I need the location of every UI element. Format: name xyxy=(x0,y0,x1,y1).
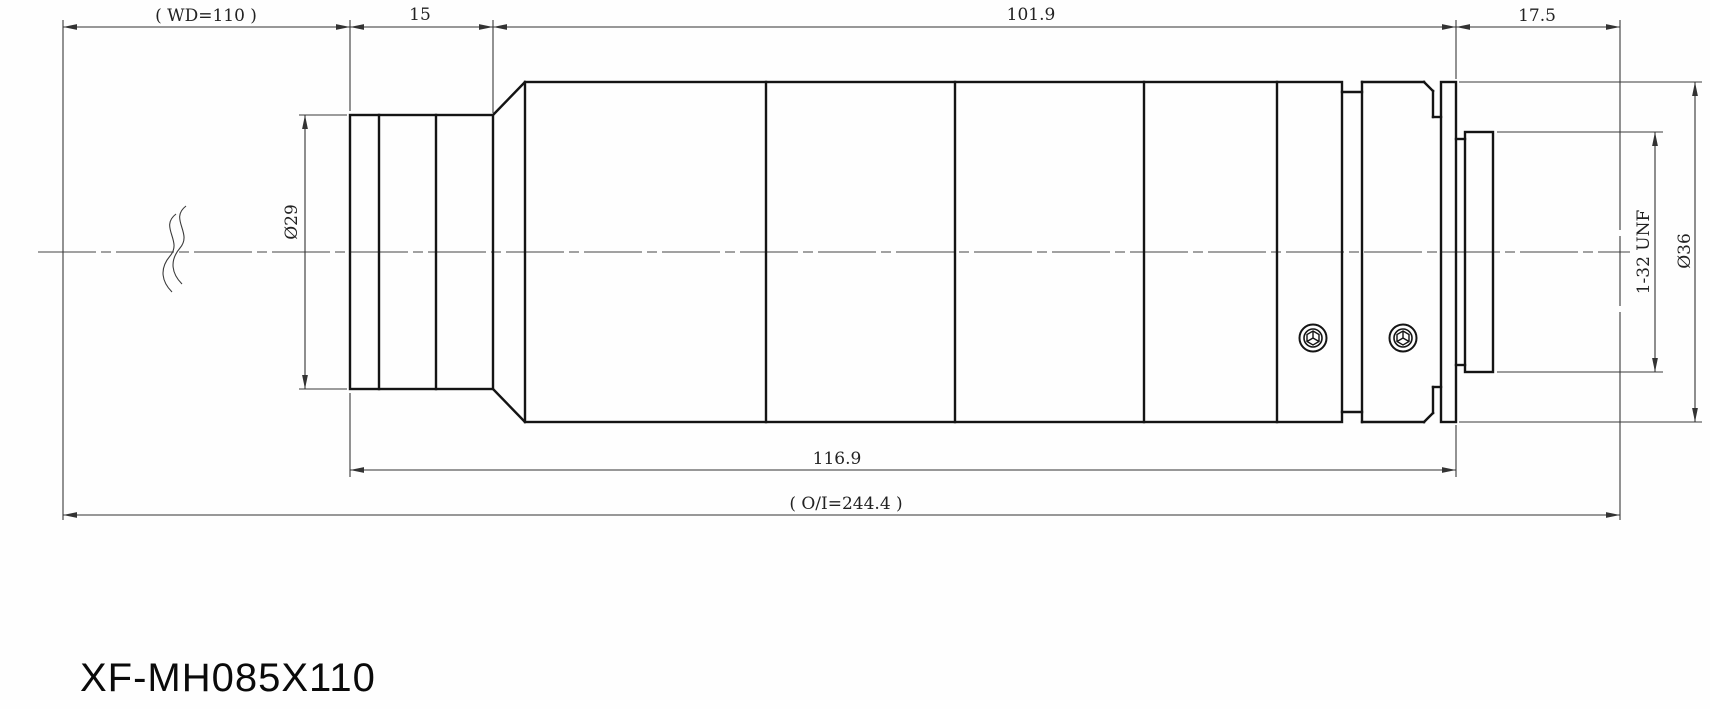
label-rear-length: 17.5 xyxy=(1518,6,1556,26)
chamfer-bottom xyxy=(493,389,525,422)
lens-technical-drawing: ( WD=110 ) 15 101.9 17.5 Ø29 1-32 UNF Ø3… xyxy=(0,0,1710,709)
label-mechanical-length: 116.9 xyxy=(813,449,862,469)
set-screw-1 xyxy=(1300,325,1327,352)
label-working-distance: ( WD=110 ) xyxy=(155,6,257,26)
label-thread: 1-32 UNF xyxy=(1634,209,1654,294)
label-object-image: ( O/I=244.4 ) xyxy=(789,494,902,514)
dimension-lines xyxy=(63,27,1695,515)
set-screw-1-socket-icon xyxy=(1307,331,1319,345)
lock-ring-chamfer-top xyxy=(1424,82,1433,91)
break-symbol-wave-1 xyxy=(173,206,186,284)
set-screw-2 xyxy=(1390,325,1417,352)
label-body-diameter: Ø36 xyxy=(1675,233,1695,269)
label-body-length: 101.9 xyxy=(1007,5,1056,25)
part-number-title: XF-MH085X110 xyxy=(80,656,376,700)
chamfer-top xyxy=(493,82,525,115)
label-front-length: 15 xyxy=(409,5,431,25)
drawing-sheet: ( WD=110 ) 15 101.9 17.5 Ø29 1-32 UNF Ø3… xyxy=(0,0,1710,709)
label-front-diameter: Ø29 xyxy=(282,204,302,240)
lock-ring-chamfer-bottom xyxy=(1424,413,1433,422)
break-symbol-wave-2 xyxy=(163,214,176,292)
optical-axis-centerline xyxy=(38,206,1630,292)
set-screw-2-socket-icon xyxy=(1397,331,1409,345)
